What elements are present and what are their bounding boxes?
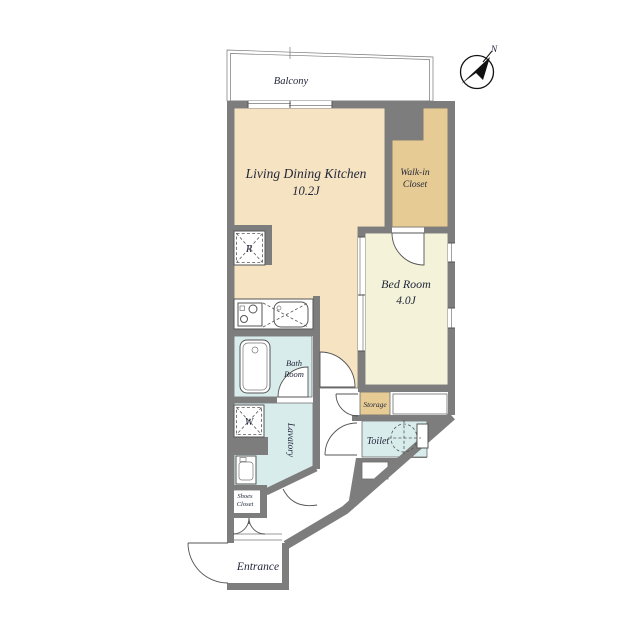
toilet-door [325, 423, 357, 455]
wall-lavatory-counter [232, 437, 268, 455]
bathtub [240, 340, 270, 393]
walk-in-closet-label-2: Closet [403, 180, 428, 190]
wash-basin [236, 456, 256, 484]
floor-plan: Balcony [0, 0, 640, 640]
balcony-label: Balcony [274, 76, 309, 87]
bedroom-window-2 [448, 308, 455, 328]
balcony-inner-line [231, 54, 430, 102]
wall-closet-left [385, 140, 392, 233]
wall-entrance-right [282, 543, 289, 590]
kitchen-counter [234, 299, 313, 329]
wall-bath-bottom [227, 397, 277, 403]
wall-fridge-niche-right [265, 225, 272, 265]
lavatory-label: Lavatory [285, 422, 295, 458]
balcony-window [248, 101, 332, 108]
bedroom-label: Bed Room [381, 277, 431, 291]
compass-north-label: N [490, 45, 498, 55]
wall-shoes-bottom [227, 513, 267, 518]
closet-under-bedroom [393, 394, 447, 414]
shoes-closet-doors [233, 518, 265, 534]
wall-storage-toilet-band [352, 415, 451, 421]
lavatory-door [283, 489, 317, 506]
balcony-outer-line [227, 50, 433, 101]
closet-doorway-gap [392, 228, 424, 234]
wall-left [227, 101, 234, 543]
toilet-label: Toilet [367, 436, 390, 447]
shoes-closet-label-1: Shoes [237, 493, 253, 500]
entrance-door [188, 543, 228, 583]
wall-notch-top-right [385, 101, 423, 140]
refrigerator: R [234, 231, 265, 265]
floor-plan-canvas: Balcony [0, 0, 640, 640]
bedroom-sliding-door [358, 237, 365, 351]
washer: W [234, 405, 264, 437]
entrance-label: Entrance [236, 561, 279, 573]
wall-bath-right [313, 296, 320, 403]
bathroom-label-1: Bath [286, 358, 302, 368]
compass: N [461, 45, 498, 89]
shoes-closet-label-2: Closet [237, 501, 254, 508]
ldk-label: Living Dining Kitchen [245, 166, 367, 181]
bedroom-window-1 [448, 243, 455, 262]
wall-lavatory-right [313, 403, 320, 469]
walk-in-closet-label-1: Walk-in [400, 168, 429, 178]
wall-entrance-bottom [227, 583, 289, 590]
storage-door [336, 394, 358, 416]
balcony: Balcony [227, 47, 433, 101]
ldk-size: 10.2J [292, 184, 321, 198]
bathroom-label-2: Room [283, 369, 304, 379]
bedroom-size: 4.0J [396, 295, 416, 307]
refrigerator-mark: R [245, 244, 252, 255]
storage-label: Storage [363, 400, 387, 409]
wall-bedroom-bottom [358, 385, 455, 392]
